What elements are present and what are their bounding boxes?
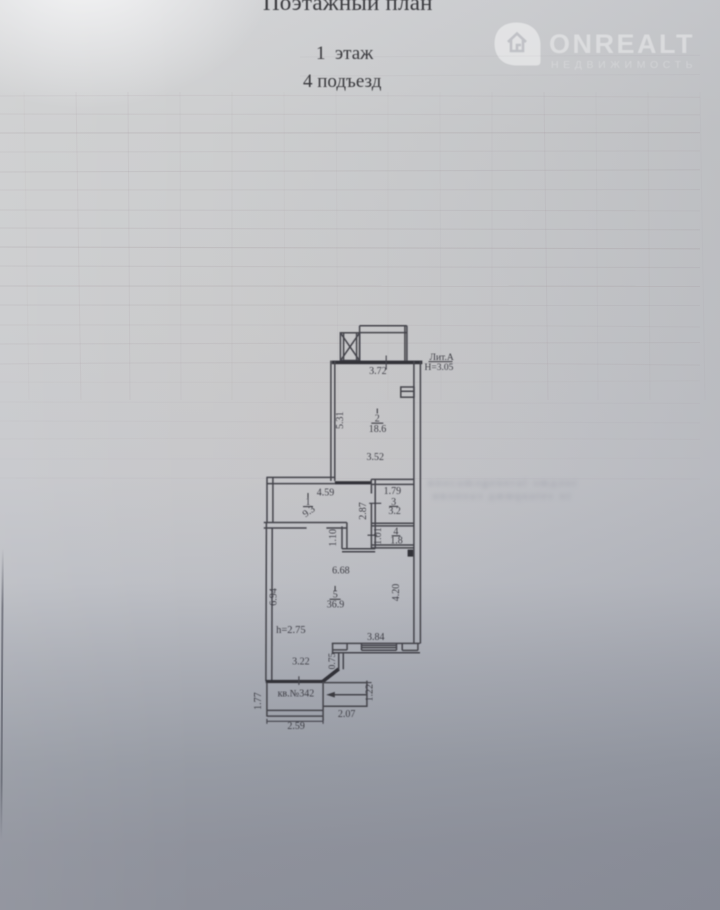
svg-text:4.59: 4.59 (317, 488, 335, 499)
svg-text:0.75: 0.75 (328, 652, 338, 669)
svg-text:1.10: 1.10 (328, 529, 339, 547)
svg-text:1.01: 1.01 (373, 527, 384, 545)
svg-text:4.20: 4.20 (391, 584, 402, 602)
svg-text:Н=3.05: Н=3.05 (425, 363, 454, 373)
svg-text:2.07: 2.07 (338, 709, 356, 720)
svg-text:1.77: 1.77 (253, 692, 264, 710)
svg-text:18.6: 18.6 (369, 424, 387, 435)
svg-text:3.52: 3.52 (367, 452, 385, 463)
svg-text:1.8: 1.8 (390, 536, 403, 547)
svg-text:кв.№342: кв.№342 (278, 689, 315, 700)
svg-text:3.2: 3.2 (388, 506, 401, 517)
svg-text:2.87: 2.87 (358, 502, 369, 520)
svg-text:h=2.75: h=2.75 (276, 625, 306, 636)
svg-text:3.84: 3.84 (367, 632, 385, 643)
svg-text:3.72: 3.72 (369, 366, 387, 377)
svg-text:6.94: 6.94 (269, 588, 280, 606)
svg-text:6.68: 6.68 (332, 565, 350, 576)
svg-text:5.31: 5.31 (335, 411, 346, 429)
svg-text:1.79: 1.79 (384, 486, 402, 497)
svg-text:2.59: 2.59 (287, 721, 305, 732)
svg-text:36.9: 36.9 (327, 600, 345, 611)
svg-text:3.22: 3.22 (292, 657, 310, 668)
svg-text:1.22: 1.22 (365, 684, 376, 702)
